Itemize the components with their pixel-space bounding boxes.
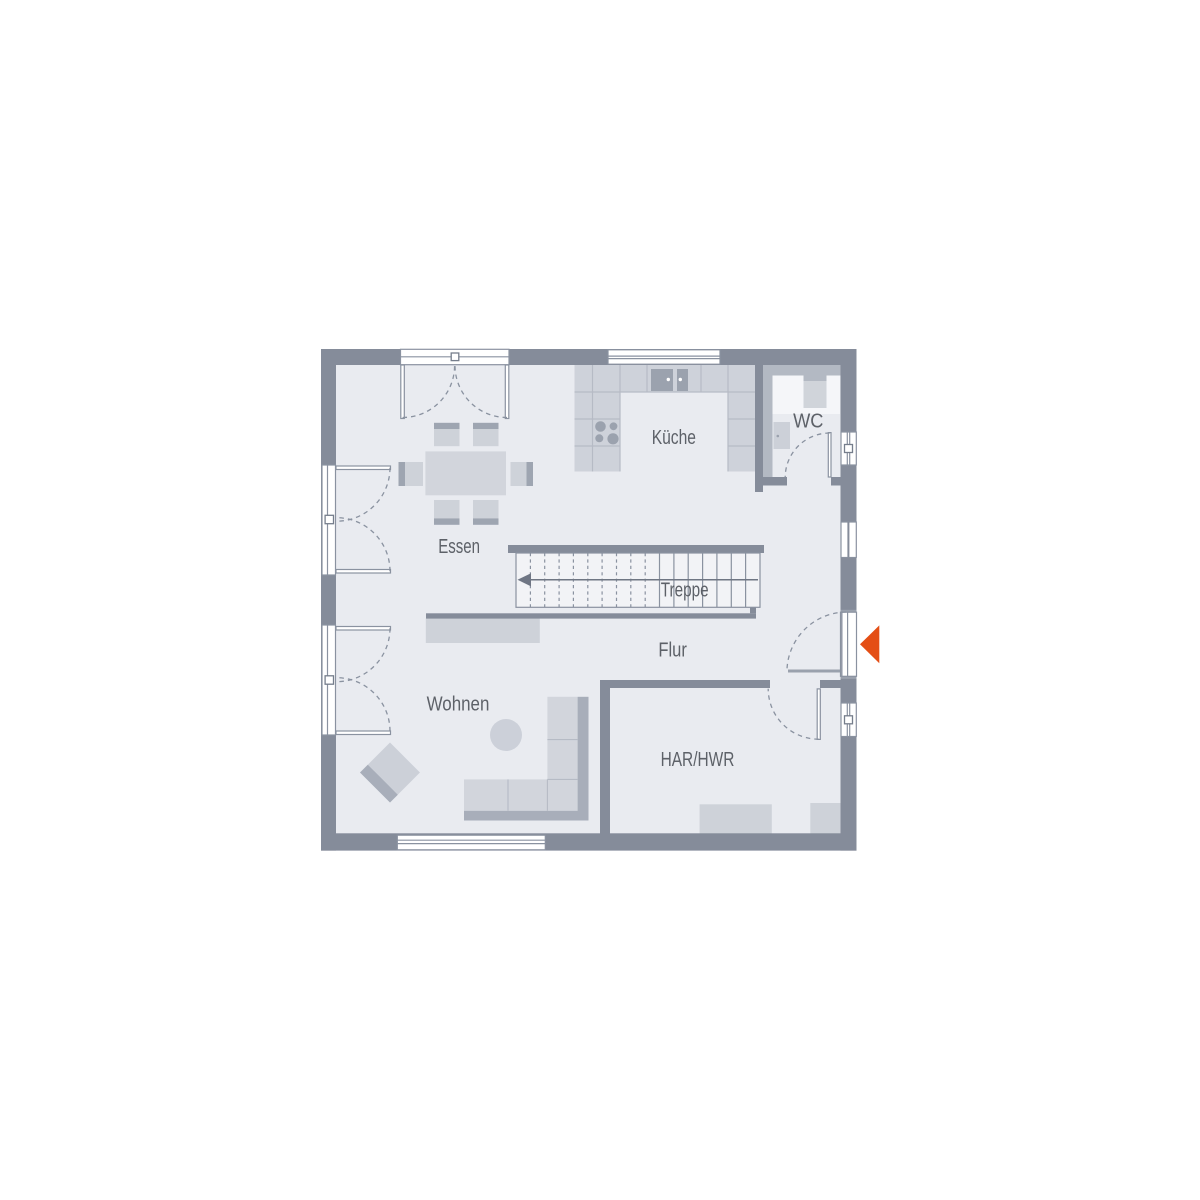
svg-text:WC: WC	[793, 410, 823, 432]
svg-text:Flur: Flur	[658, 640, 687, 662]
svg-text:Küche: Küche	[652, 427, 696, 449]
svg-text:Essen: Essen	[438, 536, 480, 558]
svg-text:Wohnen: Wohnen	[427, 693, 490, 715]
svg-text:HAR/HWR: HAR/HWR	[661, 749, 735, 771]
svg-text:Treppe: Treppe	[661, 579, 709, 601]
